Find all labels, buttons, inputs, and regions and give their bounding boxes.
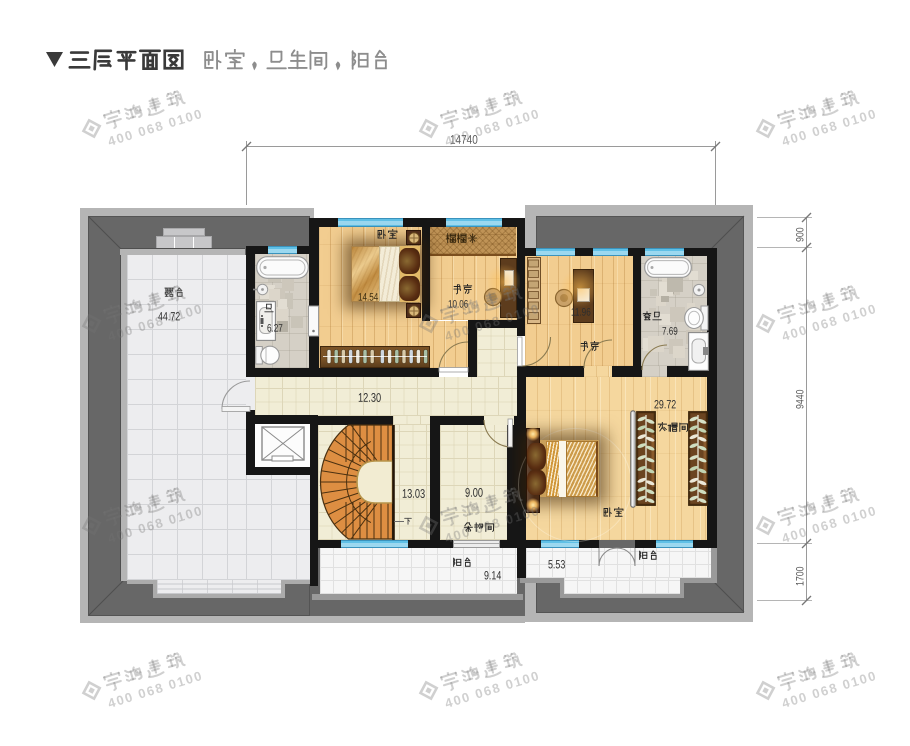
svg-text:7.69: 7.69 [662,326,678,339]
svg-text:10.06: 10.06 [448,299,468,312]
svg-text:9.00: 9.00 [465,487,483,501]
svg-text:44.72: 44.72 [158,310,180,324]
svg-text:6.27: 6.27 [267,323,283,336]
svg-text:9.14: 9.14 [484,569,501,583]
svg-text:14.54: 14.54 [358,292,379,305]
svg-text:29.72: 29.72 [654,398,676,412]
svg-text:5.53: 5.53 [548,558,565,572]
svg-text:11.96: 11.96 [571,307,591,320]
svg-text:12.30: 12.30 [358,392,381,406]
svg-text:13.03: 13.03 [402,488,425,502]
